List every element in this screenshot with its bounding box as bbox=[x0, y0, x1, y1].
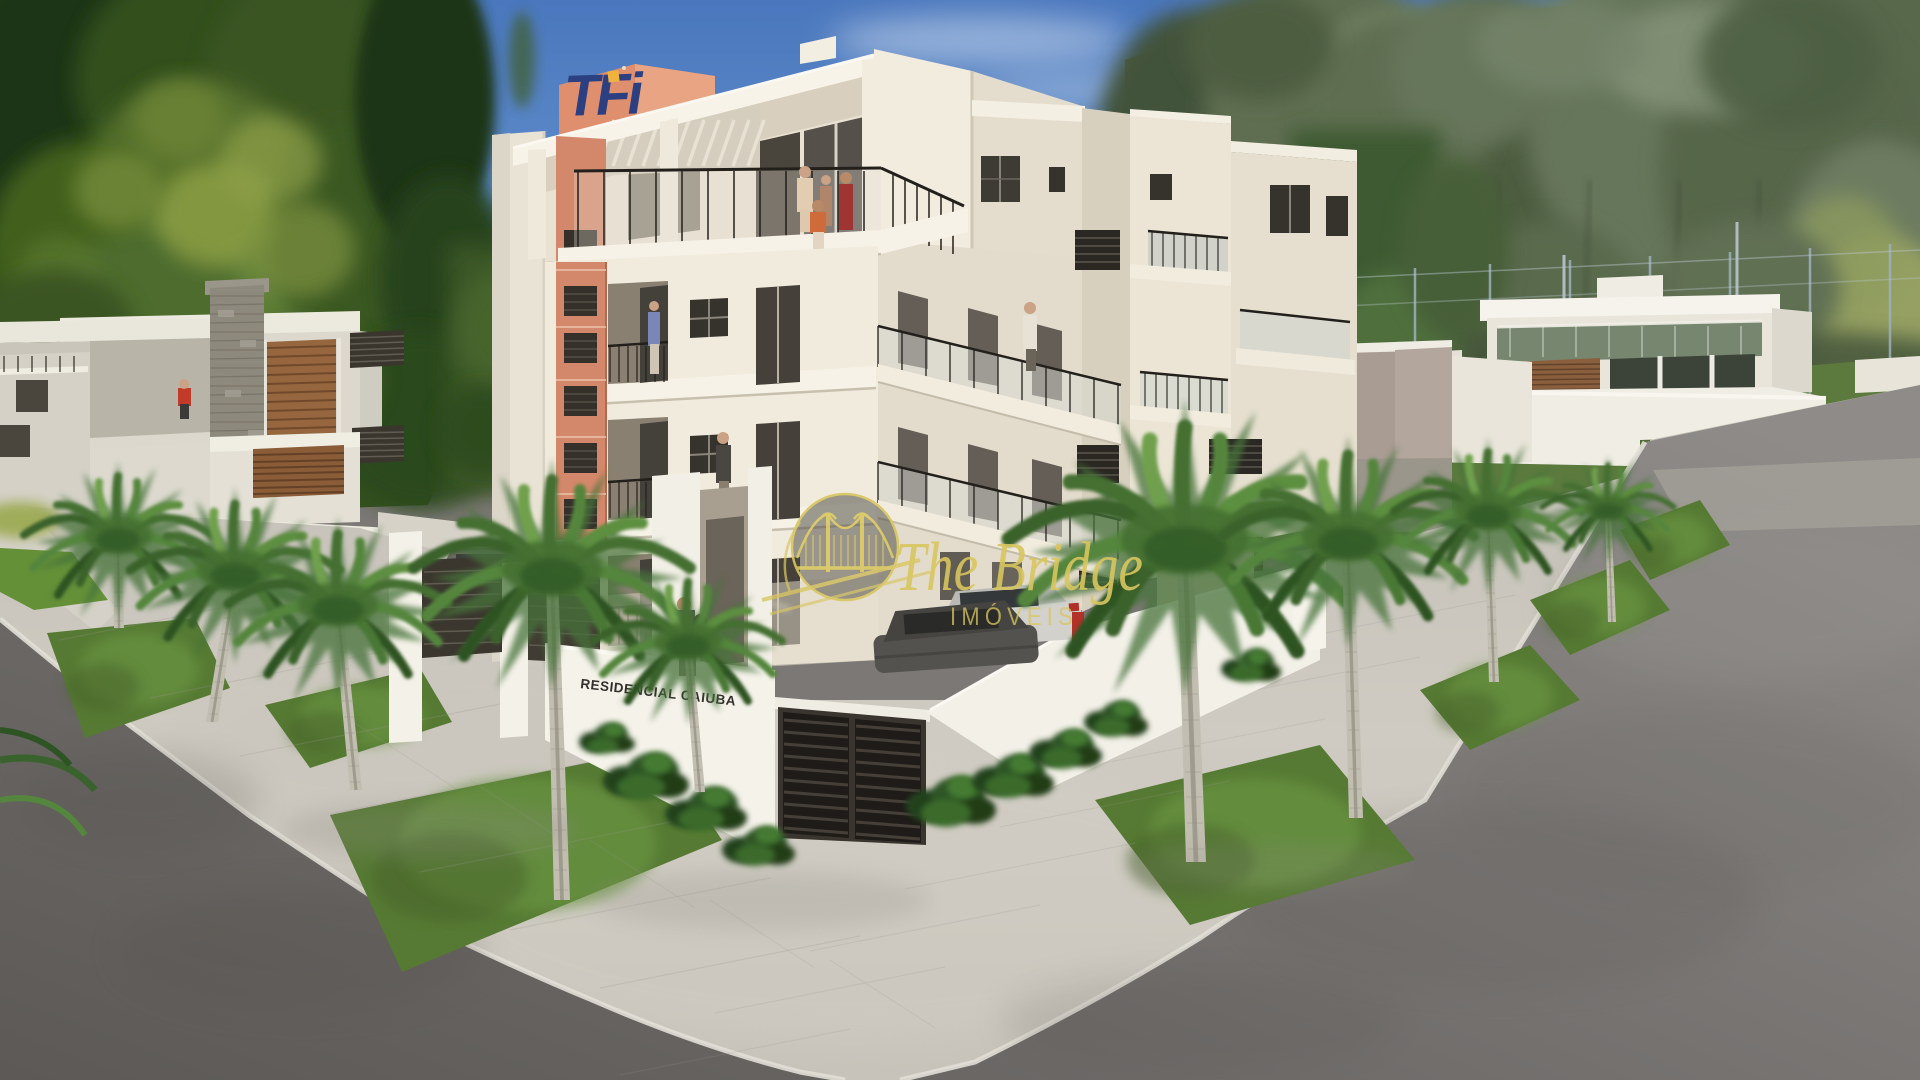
svg-text:IMÓVEIS: IMÓVEIS bbox=[950, 602, 1078, 631]
svg-text:The Bridge: The Bridge bbox=[895, 529, 1143, 606]
